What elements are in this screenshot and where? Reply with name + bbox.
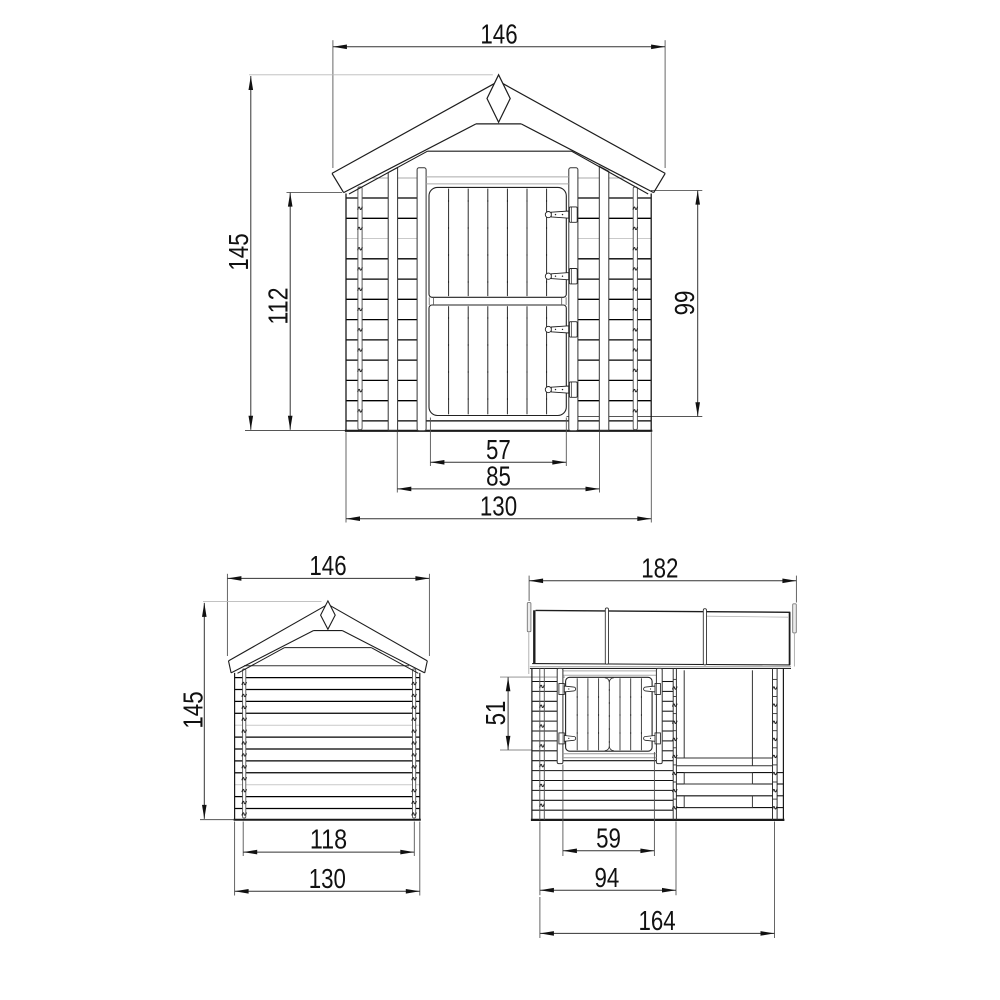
svg-text:164: 164 bbox=[639, 905, 676, 936]
svg-text:130: 130 bbox=[480, 490, 517, 521]
svg-text:59: 59 bbox=[596, 822, 621, 853]
svg-text:118: 118 bbox=[310, 824, 347, 855]
svg-text:112: 112 bbox=[262, 287, 293, 324]
svg-text:146: 146 bbox=[309, 550, 346, 581]
svg-text:51: 51 bbox=[480, 701, 511, 726]
svg-text:130: 130 bbox=[309, 863, 346, 894]
svg-text:182: 182 bbox=[641, 552, 678, 583]
svg-text:94: 94 bbox=[595, 862, 620, 893]
svg-text:146: 146 bbox=[480, 18, 517, 49]
svg-text:145: 145 bbox=[178, 691, 209, 728]
svg-text:99: 99 bbox=[669, 291, 700, 316]
svg-text:145: 145 bbox=[223, 233, 254, 270]
svg-text:85: 85 bbox=[486, 461, 511, 492]
